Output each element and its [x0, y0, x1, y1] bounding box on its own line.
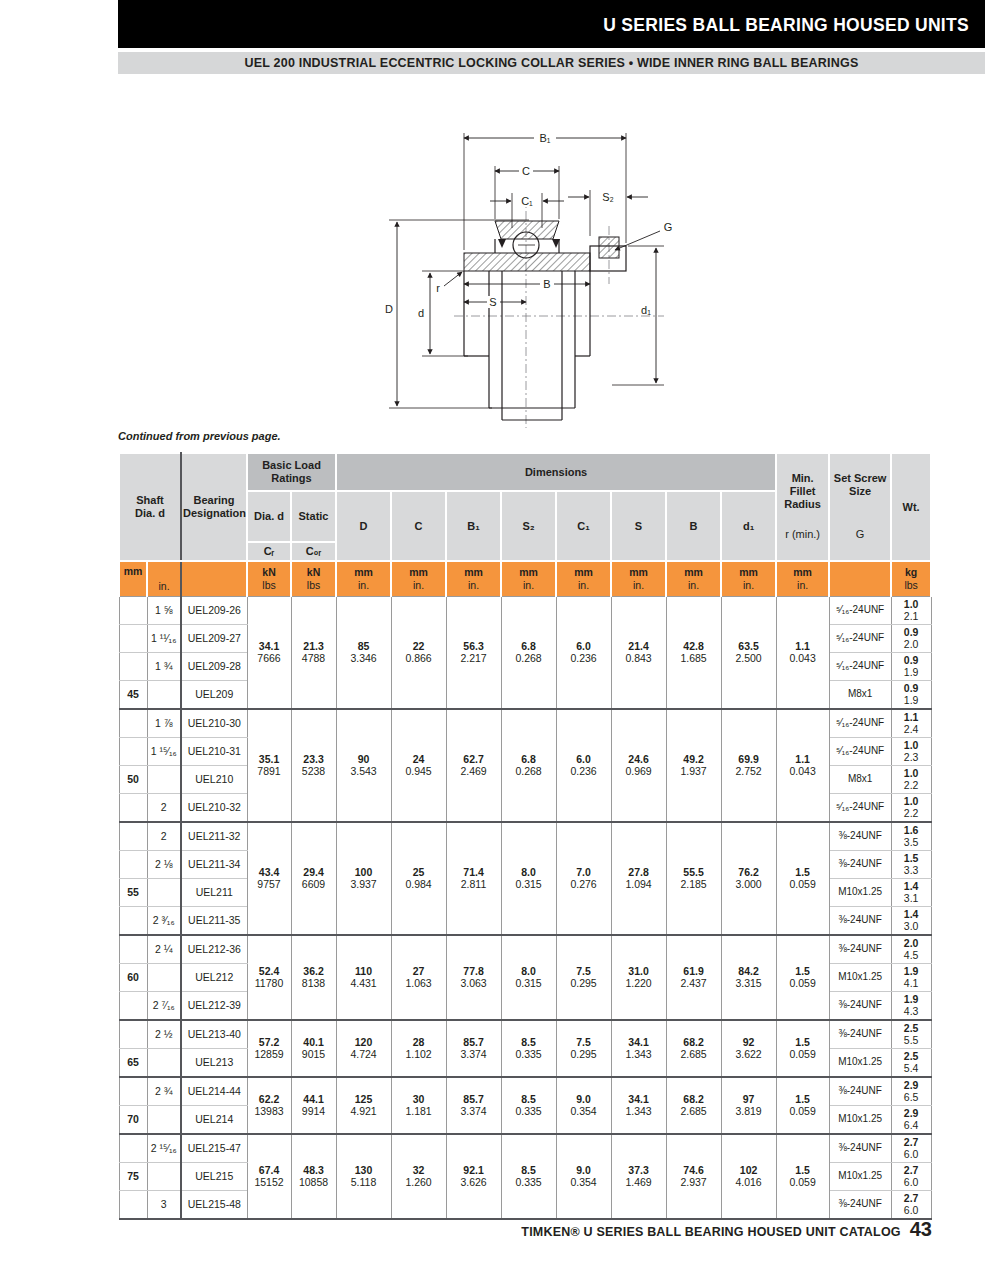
set-screw-cell: ⅜-24UNF	[829, 1020, 891, 1049]
dim-B-cell: 74.62.937	[666, 1134, 721, 1219]
shaft-mm-cell	[119, 1190, 147, 1219]
col-header-C1: C₁	[556, 491, 611, 561]
shaft-in-cell	[147, 963, 181, 991]
set-screw-cell: M10x1.25	[829, 963, 891, 991]
spec-table: Shaft Dia. d Bearing Designation Basic L…	[118, 452, 932, 1220]
designation-cell: UEL211-32	[181, 822, 247, 851]
shaft-in-cell: 1 ¹¹⁄₁₆	[147, 624, 181, 652]
shaft-in-cell	[147, 1162, 181, 1190]
col-header-shaft: Shaft Dia. d	[119, 453, 181, 561]
col-header-D: D	[336, 491, 391, 561]
table-row: 2 ¼UEL212-3652.41178036.281381104.431271…	[119, 935, 931, 964]
weight-cell: 2.76.0	[891, 1134, 931, 1163]
shaft-in-cell: 2	[147, 822, 181, 851]
set-screw-cell: ⁵⁄₁₆-24UNF	[829, 596, 891, 624]
designation-cell: UEL214	[181, 1105, 247, 1134]
shaft-mm-cell: 65	[119, 1048, 147, 1077]
shaft-in-cell: 2 ³⁄₁₆	[147, 906, 181, 935]
shaft-in-cell: 2 ⁷⁄₁₆	[147, 991, 181, 1020]
weight-cell: 1.02.3	[891, 737, 931, 765]
dim-S2-cell: 6.80.268	[501, 709, 556, 822]
col-header-static: Static	[291, 491, 336, 542]
dim-B1-cell: 92.13.626	[446, 1134, 501, 1219]
dim-c0r-cell: 44.19914	[291, 1077, 336, 1134]
weight-cell: 1.63.5	[891, 822, 931, 851]
dim-label-r: r	[436, 282, 440, 294]
col-header-S2: S₂	[501, 491, 556, 561]
dim-S2-cell: 8.50.335	[501, 1077, 556, 1134]
dim-label-D: D	[385, 303, 393, 315]
dim-d1-cell: 69.92.752	[721, 709, 776, 822]
r-min-symbol: r (min.)	[778, 528, 827, 541]
dim-S-cell: 24.60.969	[611, 709, 666, 822]
col-header-cr: Cᵣ	[247, 542, 291, 561]
weight-cell: 1.12.4	[891, 709, 931, 738]
set-screw-cell: ⁵⁄₁₆-24UNF	[829, 709, 891, 738]
dim-r-cell: 1.50.059	[776, 1134, 829, 1219]
unit-shaft-mm: mm	[119, 561, 147, 596]
set-screw-cell: ⁵⁄₁₆-24UNF	[829, 624, 891, 652]
designation-cell: UEL213-40	[181, 1020, 247, 1049]
dim-D-cell: 1305.118	[336, 1134, 391, 1219]
dim-d1-cell: 63.52.500	[721, 596, 776, 709]
weight-cell: 2.96.5	[891, 1077, 931, 1106]
col-header-d1: d₁	[721, 491, 776, 561]
set-screw-cell: ⁵⁄₁₆-24UNF	[829, 652, 891, 680]
dim-C1-cell: 7.50.295	[556, 1020, 611, 1077]
dim-C-cell: 240.945	[391, 709, 446, 822]
dim-C-cell: 301.181	[391, 1077, 446, 1134]
dim-c0r-cell: 23.35238	[291, 709, 336, 822]
weight-cell: 2.55.5	[891, 1020, 931, 1049]
designation-cell: UEL211-35	[181, 906, 247, 935]
set-screw-cell: M10x1.25	[829, 878, 891, 906]
weight-cell: 1.94.3	[891, 991, 931, 1020]
dim-D-cell: 1254.921	[336, 1077, 391, 1134]
col-header-dia-d: Dia. d	[247, 491, 291, 542]
designation-cell: UEL209-28	[181, 652, 247, 680]
dim-c0r-cell: 40.19015	[291, 1020, 336, 1077]
shaft-in-cell: 2 ¹⁵⁄₁₆	[147, 1134, 181, 1163]
set-screw-cell: M10x1.25	[829, 1048, 891, 1077]
fillet-radius-label: Min. Fillet Radius	[778, 472, 827, 511]
table-row: 2 ½UEL213-4057.21285940.190151204.724281…	[119, 1020, 931, 1049]
bearing-cross-section: B₁ C C₁ S₂ G D d r B S d₁	[372, 98, 692, 433]
col-header-C: C	[391, 491, 446, 561]
set-screw-cell: ⁵⁄₁₆-24UNF	[829, 737, 891, 765]
dim-C1-cell: 9.00.354	[556, 1134, 611, 1219]
weight-cell: 2.55.4	[891, 1048, 931, 1077]
shaft-in-cell: 1 ⅞	[147, 709, 181, 738]
dim-c0r-cell: 29.46609	[291, 822, 336, 935]
dim-cr-cell: 52.411780	[247, 935, 291, 1020]
shaft-in-cell	[147, 1048, 181, 1077]
unit-r: mmin.	[776, 561, 829, 596]
unit-designation-blank	[181, 561, 247, 596]
dim-S-cell: 27.81.094	[611, 822, 666, 935]
shaft-mm-cell: 60	[119, 963, 147, 991]
set-screw-cell: M8x1	[829, 680, 891, 709]
shaft-in-cell	[147, 680, 181, 709]
weight-cell: 2.76.0	[891, 1190, 931, 1219]
shaft-mm-cell	[119, 596, 147, 624]
col-header-S: S	[611, 491, 666, 561]
weight-cell: 0.92.0	[891, 624, 931, 652]
shaft-mm-cell: 45	[119, 680, 147, 709]
dim-label-d: d	[418, 307, 424, 319]
designation-cell: UEL212-36	[181, 935, 247, 964]
dim-B1-cell: 77.83.063	[446, 935, 501, 1020]
table-row: 2UEL211-3243.4975729.466091003.937250.98…	[119, 822, 931, 851]
dim-D-cell: 1104.431	[336, 935, 391, 1020]
set-screw-cell: ⅜-24UNF	[829, 822, 891, 851]
dim-S-cell: 34.11.343	[611, 1020, 666, 1077]
set-screw-cell: M10x1.25	[829, 1105, 891, 1134]
col-header-bearing: Bearing Designation	[181, 453, 247, 561]
dim-D-cell: 1003.937	[336, 822, 391, 935]
shaft-mm-cell	[119, 793, 147, 822]
col-header-basic-load: Basic Load Ratings	[247, 453, 336, 491]
set-screw-cell: ⅜-24UNF	[829, 1134, 891, 1163]
dim-B-cell: 61.92.437	[666, 935, 721, 1020]
dim-S-cell: 34.11.343	[611, 1077, 666, 1134]
dim-d1-cell: 76.23.000	[721, 822, 776, 935]
g-symbol: G	[831, 528, 889, 541]
shaft-mm-cell	[119, 935, 147, 964]
dim-C-cell: 250.984	[391, 822, 446, 935]
dim-C1-cell: 6.00.236	[556, 709, 611, 822]
designation-cell: UEL211	[181, 878, 247, 906]
col-header-B1: B₁	[446, 491, 501, 561]
dim-cr-cell: 57.212859	[247, 1020, 291, 1077]
designation-cell: UEL215-48	[181, 1190, 247, 1219]
dim-C-cell: 321.260	[391, 1134, 446, 1219]
dim-r-cell: 1.10.043	[776, 596, 829, 709]
dim-C1-cell: 7.50.295	[556, 935, 611, 1020]
dim-B1-cell: 85.73.374	[446, 1020, 501, 1077]
shaft-mm-cell: 70	[119, 1105, 147, 1134]
dim-d1-cell: 84.23.315	[721, 935, 776, 1020]
designation-cell: UEL213	[181, 1048, 247, 1077]
weight-cell: 2.76.0	[891, 1162, 931, 1190]
footer-catalog-title: TIMKEN® U SERIES BALL BEARING HOUSED UNI…	[521, 1225, 900, 1239]
set-screw-cell: ⅜-24UNF	[829, 906, 891, 935]
table-row: 2 ¹⁵⁄₁₆UEL215-4767.41515248.3108581305.1…	[119, 1134, 931, 1163]
shaft-in-cell: 2 ¼	[147, 935, 181, 964]
shaft-mm-cell	[119, 737, 147, 765]
dim-B-cell: 68.22.685	[666, 1020, 721, 1077]
set-screw-cell: ⅜-24UNF	[829, 935, 891, 964]
col-header-c0r: C₀ᵣ	[291, 542, 336, 561]
unit-wt: kglbs	[891, 561, 931, 596]
dim-S-cell: 31.01.220	[611, 935, 666, 1020]
set-screw-cell: ⅜-24UNF	[829, 1190, 891, 1219]
dim-B-cell: 55.52.185	[666, 822, 721, 935]
dim-r-cell: 1.10.043	[776, 709, 829, 822]
weight-cell: 0.91.9	[891, 652, 931, 680]
dim-S2-cell: 8.00.315	[501, 935, 556, 1020]
weight-cell: 1.02.1	[891, 596, 931, 624]
dim-C-cell: 271.063	[391, 935, 446, 1020]
dim-C1-cell: 9.00.354	[556, 1077, 611, 1134]
dim-c0r-cell: 48.310858	[291, 1134, 336, 1219]
dim-B-cell: 42.81.685	[666, 596, 721, 709]
set-screw-cell: ⅜-24UNF	[829, 1077, 891, 1106]
weight-cell: 1.53.3	[891, 850, 931, 878]
dim-r-cell: 1.50.059	[776, 1020, 829, 1077]
dim-C1-cell: 7.00.276	[556, 822, 611, 935]
unit-d1: mmin.	[721, 561, 776, 596]
shaft-mm-cell	[119, 1134, 147, 1163]
set-screw-cell: M10x1.25	[829, 1162, 891, 1190]
shaft-mm-cell	[119, 1077, 147, 1106]
table-row: 1 ⅞UEL210-3035.1789123.35238903.543240.9…	[119, 709, 931, 738]
dim-S-cell: 37.31.469	[611, 1134, 666, 1219]
col-header-fillet-radius: Min. Fillet Radiusr (min.)	[776, 453, 829, 561]
dim-D-cell: 853.346	[336, 596, 391, 709]
col-header-B: B	[666, 491, 721, 561]
set-screw-cell: ⅜-24UNF	[829, 991, 891, 1020]
dim-B-cell: 68.22.685	[666, 1077, 721, 1134]
dim-D-cell: 1204.724	[336, 1020, 391, 1077]
designation-cell: UEL210	[181, 765, 247, 793]
unit-shaft-in: in.	[147, 561, 181, 596]
designation-cell: UEL211-34	[181, 850, 247, 878]
dim-S2-cell: 8.50.335	[501, 1020, 556, 1077]
unit-S: mmin.	[611, 561, 666, 596]
weight-cell: 2.96.4	[891, 1105, 931, 1134]
designation-cell: UEL210-32	[181, 793, 247, 822]
designation-cell: UEL212-39	[181, 991, 247, 1020]
designation-cell: UEL209-26	[181, 596, 247, 624]
dim-label-c: C	[522, 165, 530, 177]
shaft-in-cell: 1 ¾	[147, 652, 181, 680]
designation-cell: UEL209-27	[181, 624, 247, 652]
shaft-mm-cell	[119, 1020, 147, 1049]
shaft-mm-cell	[119, 906, 147, 935]
shaft-in-cell: 2 ¾	[147, 1077, 181, 1106]
weight-cell: 1.94.1	[891, 963, 931, 991]
unit-B1: mmin.	[446, 561, 501, 596]
shaft-in-cell: 1 ⅝	[147, 596, 181, 624]
weight-cell: 1.43.1	[891, 878, 931, 906]
series-subtitle: UEL 200 INDUSTRIAL ECCENTRIC LOCKING COL…	[118, 52, 985, 74]
dim-r-cell: 1.50.059	[776, 1077, 829, 1134]
designation-cell: UEL209	[181, 680, 247, 709]
page-footer: TIMKEN® U SERIES BALL BEARING HOUSED UNI…	[521, 1218, 932, 1241]
unit-cr: kNlbs	[247, 561, 291, 596]
footer-page-number: 43	[910, 1218, 932, 1241]
designation-cell: UEL215	[181, 1162, 247, 1190]
shaft-mm-cell	[119, 709, 147, 738]
shaft-in-cell: 2 ½	[147, 1020, 181, 1049]
dim-d1-cell: 1024.016	[721, 1134, 776, 1219]
table-row: 2 ¾UEL214-4462.21398344.199141254.921301…	[119, 1077, 931, 1106]
dim-label-b1: B₁	[539, 132, 550, 144]
dim-d1-cell: 973.819	[721, 1077, 776, 1134]
unit-C: mmin.	[391, 561, 446, 596]
dim-label-s2: S₂	[602, 191, 614, 203]
dim-B1-cell: 71.42.811	[446, 822, 501, 935]
weight-cell: 1.02.2	[891, 793, 931, 822]
shaft-mm-cell	[119, 850, 147, 878]
designation-cell: UEL210-30	[181, 709, 247, 738]
dim-S2-cell: 8.00.315	[501, 822, 556, 935]
dim-cr-cell: 43.49757	[247, 822, 291, 935]
dim-label-g: G	[664, 221, 673, 233]
shaft-in-cell: 1 ¹⁵⁄₁₆	[147, 737, 181, 765]
dim-r-cell: 1.50.059	[776, 935, 829, 1020]
set-screw-label: Set Screw Size	[831, 472, 889, 498]
weight-cell: 1.02.2	[891, 765, 931, 793]
shaft-mm-cell	[119, 822, 147, 851]
page-title: U SERIES BALL BEARING HOUSED UNITS	[118, 0, 985, 48]
shaft-mm-cell: 75	[119, 1162, 147, 1190]
weight-cell: 1.43.0	[891, 906, 931, 935]
dim-S2-cell: 8.50.335	[501, 1134, 556, 1219]
dim-cr-cell: 62.213983	[247, 1077, 291, 1134]
col-header-set-screw: Set Screw SizeG	[829, 453, 891, 561]
shaft-mm-cell	[119, 991, 147, 1020]
dim-C-cell: 220.866	[391, 596, 446, 709]
dim-C1-cell: 6.00.236	[556, 596, 611, 709]
bearing-technical-drawing: B₁ C C₁ S₂ G D d r B S d₁	[372, 98, 692, 433]
shaft-in-cell: 2	[147, 793, 181, 822]
set-screw-cell: M8x1	[829, 765, 891, 793]
unit-C1: mmin.	[556, 561, 611, 596]
dim-B1-cell: 62.72.469	[446, 709, 501, 822]
dim-cr-cell: 34.17666	[247, 596, 291, 709]
designation-cell: UEL210-31	[181, 737, 247, 765]
dim-C-cell: 281.102	[391, 1020, 446, 1077]
shaft-in-cell	[147, 765, 181, 793]
dim-label-d1: d₁	[641, 304, 651, 316]
dim-cr-cell: 67.415152	[247, 1134, 291, 1219]
units-row: mm in. kNlbs kNlbs mmin. mmin. mmin. mmi…	[119, 561, 931, 596]
col-header-wt: Wt.	[891, 453, 931, 561]
dim-label-c1: C₁	[521, 195, 533, 207]
set-screw-cell: ⅜-24UNF	[829, 850, 891, 878]
dim-label-S: S	[489, 296, 496, 308]
dim-D-cell: 903.543	[336, 709, 391, 822]
col-header-dimensions: Dimensions	[336, 453, 776, 491]
shaft-in-cell	[147, 1105, 181, 1134]
dim-cr-cell: 35.17891	[247, 709, 291, 822]
shaft-mm-cell: 50	[119, 765, 147, 793]
dim-S-cell: 21.40.843	[611, 596, 666, 709]
designation-cell: UEL214-44	[181, 1077, 247, 1106]
unit-D: mmin.	[336, 561, 391, 596]
shaft-mm-cell	[119, 624, 147, 652]
shaft-mm-cell: 55	[119, 878, 147, 906]
dim-B-cell: 49.21.937	[666, 709, 721, 822]
dim-d1-cell: 923.622	[721, 1020, 776, 1077]
designation-cell: UEL212	[181, 963, 247, 991]
dim-B1-cell: 85.73.374	[446, 1077, 501, 1134]
dim-B1-cell: 56.32.217	[446, 596, 501, 709]
spec-table-body: 1 ⅝UEL209-2634.1766621.34788853.346220.8…	[119, 596, 931, 1219]
unit-S2: mmin.	[501, 561, 556, 596]
unit-g-blank	[829, 561, 891, 596]
shaft-in-cell	[147, 878, 181, 906]
shaft-mm-cell	[119, 652, 147, 680]
unit-c0r: kNlbs	[291, 561, 336, 596]
dim-c0r-cell: 21.34788	[291, 596, 336, 709]
continued-note: Continued from previous page.	[118, 430, 281, 442]
set-screw-cell: ⁵⁄₁₆-24UNF	[829, 793, 891, 822]
unit-B: mmin.	[666, 561, 721, 596]
designation-cell: UEL215-47	[181, 1134, 247, 1163]
weight-cell: 0.91.9	[891, 680, 931, 709]
dim-r-cell: 1.50.059	[776, 822, 829, 935]
dim-label-B: B	[543, 278, 550, 290]
weight-cell: 2.04.5	[891, 935, 931, 964]
table-row: 1 ⅝UEL209-2634.1766621.34788853.346220.8…	[119, 596, 931, 624]
dim-c0r-cell: 36.28138	[291, 935, 336, 1020]
dim-S2-cell: 6.80.268	[501, 596, 556, 709]
shaft-in-cell: 3	[147, 1190, 181, 1219]
shaft-in-cell: 2 ⅛	[147, 850, 181, 878]
